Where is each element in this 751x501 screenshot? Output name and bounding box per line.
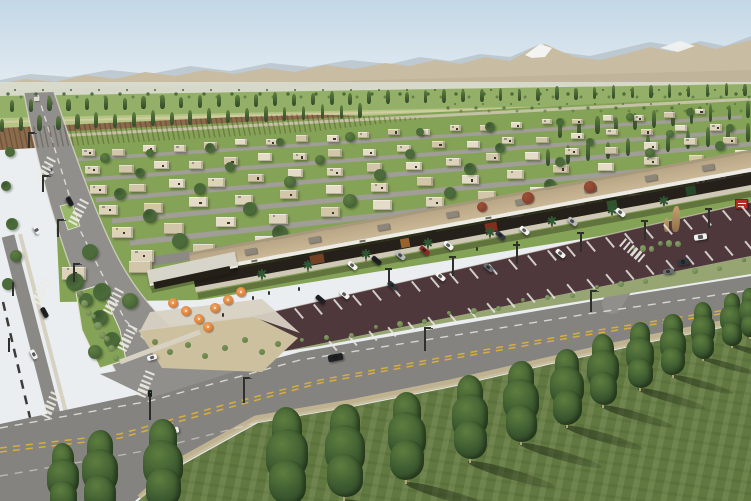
- rooftop-unit: [702, 164, 715, 172]
- house-window: [272, 142, 274, 144]
- house: [208, 178, 224, 187]
- poplar-foliage: [506, 405, 537, 442]
- light-crossbar: [641, 220, 648, 222]
- rooftop-ac-unit: [84, 150, 87, 152]
- parking-stripe: [368, 331, 377, 341]
- house: [695, 109, 705, 114]
- shrub: [521, 298, 525, 302]
- parked-car: [434, 272, 446, 283]
- street-tree: [686, 108, 694, 116]
- rooftop-ac-unit: [93, 186, 96, 188]
- field-tree: [518, 89, 522, 101]
- field-tree: [235, 95, 239, 107]
- rooftop-ac-unit: [88, 167, 91, 169]
- street-tree: [225, 162, 235, 172]
- poplar-tree: [47, 443, 78, 501]
- rooftop-ac-unit: [429, 198, 432, 200]
- house-window: [573, 151, 575, 153]
- house: [675, 125, 687, 131]
- car-cabin: [569, 219, 574, 224]
- poplar-tree: [325, 404, 366, 501]
- parking-light: [644, 220, 646, 240]
- house: [112, 149, 125, 156]
- house: [446, 158, 461, 166]
- street-tree: [122, 293, 138, 309]
- car-cabin: [397, 253, 402, 258]
- poplar-tree: [626, 322, 655, 391]
- field-tree: [649, 85, 652, 98]
- shrub: [471, 308, 477, 314]
- rooftop-ac-unit: [116, 228, 119, 230]
- house: [511, 122, 522, 128]
- house: [536, 137, 549, 144]
- field-tree: [207, 108, 211, 124]
- parking-stripe: [605, 237, 615, 248]
- street-tree: [343, 194, 357, 208]
- house: [572, 119, 583, 125]
- street-tree: [6, 218, 18, 230]
- car-cabin: [697, 234, 702, 239]
- house-window: [257, 177, 259, 179]
- rooftop-ac-unit: [375, 184, 378, 186]
- field-tree: [536, 88, 540, 101]
- ornamental-red-tree: [584, 181, 596, 193]
- poplar-tree: [691, 302, 716, 361]
- rooftop-ac-unit: [452, 126, 455, 128]
- parking-stripe: [333, 299, 343, 310]
- house: [321, 207, 340, 217]
- field-tree: [652, 110, 656, 128]
- house: [326, 185, 344, 194]
- car-cabin: [341, 292, 346, 297]
- street-tree: [172, 233, 188, 249]
- rooftop-ac-unit: [102, 206, 105, 208]
- parking-light: [580, 232, 582, 252]
- parking-stripe: [566, 246, 576, 257]
- rooftop-unit: [377, 223, 390, 231]
- field-tree: [264, 106, 268, 122]
- shrub: [374, 325, 378, 329]
- field-tree: [709, 104, 712, 122]
- house: [327, 168, 343, 176]
- light-crossbar: [577, 232, 584, 234]
- street-light: [73, 263, 75, 282]
- street-tree: [626, 113, 634, 121]
- shrub: [545, 295, 551, 301]
- shrub: [658, 241, 663, 246]
- car: [693, 233, 707, 241]
- rooftop-ac-unit: [712, 125, 715, 127]
- shrub: [349, 333, 354, 338]
- house: [606, 129, 618, 136]
- house: [502, 137, 515, 144]
- rooftop-ac-unit: [360, 133, 363, 135]
- house-window: [731, 140, 733, 142]
- street-tree: [405, 149, 415, 159]
- parked-car: [482, 263, 494, 274]
- field-tree: [151, 110, 155, 126]
- street-tree: [555, 157, 565, 167]
- rooftop-unit: [644, 174, 657, 182]
- light-crossbar: [705, 208, 712, 210]
- house-window: [639, 118, 641, 120]
- umbrella-pole-tip: [207, 326, 209, 328]
- house: [641, 129, 653, 135]
- street-light: [12, 282, 14, 296]
- parking-stripe: [427, 317, 436, 327]
- house: [571, 133, 583, 140]
- poplar-foliage: [590, 372, 617, 405]
- house: [174, 145, 187, 152]
- field-tree: [292, 94, 296, 106]
- palm-tree: [302, 261, 314, 273]
- car-cabin: [332, 354, 338, 360]
- house: [525, 152, 539, 160]
- patio-umbrella: [210, 303, 220, 313]
- house: [189, 161, 203, 169]
- field-tree: [687, 86, 690, 98]
- house-window: [199, 202, 201, 204]
- car-cabin: [373, 258, 378, 263]
- umbrella-pole-tip: [240, 291, 242, 293]
- field-tree: [424, 90, 428, 103]
- shrub: [108, 345, 115, 352]
- street-tree: [88, 345, 102, 359]
- street-tree: [194, 183, 206, 195]
- rooftop-ac-unit: [647, 158, 650, 160]
- rooftop-ac-unit: [67, 268, 70, 270]
- poplar-tree: [82, 430, 118, 501]
- parking-stripe: [449, 273, 459, 284]
- street-tree: [146, 149, 154, 157]
- field-tree: [198, 95, 202, 108]
- house: [363, 149, 377, 156]
- house-window: [336, 172, 338, 174]
- house: [373, 200, 392, 210]
- street-light: [590, 290, 592, 312]
- field-tree: [555, 86, 559, 100]
- storefront: [400, 238, 410, 248]
- field-tree: [170, 112, 174, 126]
- aerial-community-rendering: [0, 0, 751, 501]
- person: [222, 313, 224, 317]
- field-tree: [367, 91, 371, 104]
- street-light: [57, 219, 59, 237]
- house-window: [301, 156, 303, 158]
- parking-stripe: [348, 336, 357, 346]
- parking-stripe: [487, 303, 496, 313]
- rooftop-ac-unit: [238, 196, 241, 198]
- patio-umbrella: [168, 298, 178, 308]
- street-tree: [100, 153, 110, 163]
- street-tree: [82, 244, 98, 260]
- house-window: [381, 187, 383, 189]
- field-tree: [405, 92, 409, 104]
- poplar-foliage: [692, 333, 714, 359]
- shrub: [422, 319, 427, 324]
- house: [598, 163, 614, 171]
- field-tree: [10, 100, 15, 112]
- field-tree: [132, 112, 136, 127]
- house: [603, 115, 614, 121]
- house-window: [227, 222, 229, 224]
- poplar-foliage: [628, 358, 653, 388]
- palm-tree: [360, 250, 372, 262]
- person: [476, 247, 478, 251]
- street-light: [243, 377, 245, 403]
- street-tree: [715, 141, 725, 151]
- field-tree: [85, 98, 89, 111]
- shrub: [275, 341, 281, 347]
- rooftop-ac-unit: [212, 179, 215, 181]
- street-tree: [315, 155, 325, 165]
- house: [388, 129, 400, 135]
- parking-stripe: [372, 290, 382, 301]
- field-tree: [340, 105, 343, 119]
- shrub: [595, 285, 599, 289]
- field-tree: [0, 119, 4, 133]
- car: [32, 225, 40, 235]
- rooftop-ac-unit: [273, 215, 276, 217]
- field-tree: [706, 84, 709, 97]
- house: [406, 162, 421, 170]
- lamp-head: [48, 176, 51, 178]
- parking-stripe: [313, 304, 323, 315]
- house-window: [652, 146, 654, 148]
- poplar-tree: [503, 361, 538, 445]
- field-tree: [245, 108, 249, 123]
- street-tree: [276, 138, 284, 146]
- house: [296, 135, 308, 141]
- house-window: [578, 136, 580, 138]
- street-tree: [243, 202, 257, 216]
- house-window: [178, 183, 180, 185]
- shrub: [202, 353, 208, 359]
- shrub: [104, 336, 109, 341]
- parking-stripe: [683, 219, 693, 230]
- parking-stripe: [411, 281, 421, 292]
- car-cabin: [485, 265, 490, 270]
- poplar-tree: [452, 375, 489, 463]
- shrub: [717, 266, 722, 271]
- parking-stripe: [625, 269, 634, 279]
- rooftop-ac-unit: [296, 154, 299, 156]
- house: [216, 217, 236, 228]
- shrub: [77, 291, 82, 296]
- shrub: [324, 335, 330, 341]
- car-cabin: [680, 260, 685, 265]
- field-tree: [546, 149, 551, 166]
- field-tree: [348, 93, 352, 105]
- car-cabin: [557, 251, 562, 256]
- shrub: [649, 246, 655, 252]
- field-tree: [179, 97, 183, 109]
- house: [131, 250, 154, 262]
- shrub: [113, 355, 119, 361]
- lamp-head: [34, 133, 37, 135]
- light-crossbar: [449, 256, 456, 258]
- rooftop-ac-unit: [686, 139, 689, 141]
- field-tree: [217, 94, 221, 108]
- house-window: [89, 152, 91, 154]
- field-tree: [321, 104, 324, 120]
- house: [189, 197, 207, 207]
- house: [327, 135, 339, 141]
- street-tree: [345, 132, 355, 142]
- person: [298, 287, 300, 291]
- car: [327, 352, 343, 362]
- light-crossbar: [513, 244, 520, 246]
- rooftop-ac-unit: [176, 146, 179, 148]
- street-tree: [143, 209, 157, 223]
- rooftop-unit: [244, 247, 257, 255]
- parked-car: [314, 295, 326, 306]
- field-tree: [160, 95, 164, 109]
- house-window: [517, 125, 519, 127]
- house-window: [162, 165, 164, 167]
- car: [39, 307, 49, 319]
- field-tree: [743, 84, 746, 96]
- farm-building: [34, 97, 39, 101]
- parked-car: [554, 249, 566, 260]
- rooftop-ac-unit: [449, 159, 452, 161]
- parking-stripe: [606, 274, 615, 284]
- field-tree: [47, 97, 52, 111]
- house: [82, 149, 95, 156]
- house-window: [333, 138, 335, 140]
- rooftop-ac-unit: [192, 162, 195, 164]
- parking-light: [452, 256, 454, 276]
- house: [358, 132, 370, 138]
- house-window: [562, 168, 564, 170]
- street-tree: [1, 181, 11, 191]
- poplar-foliage: [661, 347, 685, 375]
- house: [119, 165, 134, 173]
- shrub: [242, 337, 248, 343]
- lamp-head: [79, 264, 82, 266]
- poplar-foliage: [454, 421, 487, 460]
- shrub: [666, 240, 673, 247]
- patio-umbrella: [236, 287, 246, 297]
- house: [684, 138, 697, 145]
- field-tree: [123, 98, 127, 110]
- rooftop-ac-unit: [400, 146, 403, 148]
- car: [30, 348, 39, 359]
- umbrella-pole-tip: [185, 310, 187, 312]
- house-window: [652, 161, 654, 163]
- light-crossbar: [385, 268, 392, 270]
- palm-tree: [546, 217, 558, 229]
- parking-stripe: [352, 295, 362, 306]
- person: [268, 291, 270, 295]
- shrub: [152, 339, 158, 345]
- field-tree: [746, 123, 749, 142]
- car-cabin: [445, 243, 450, 248]
- rooftop-unit: [446, 210, 459, 218]
- car-cabin: [437, 274, 442, 279]
- poplar-foliage: [327, 454, 363, 497]
- field-tree: [386, 90, 390, 104]
- house: [605, 147, 619, 154]
- car: [66, 195, 75, 206]
- palm-tree: [658, 197, 670, 209]
- street-tree: [495, 143, 505, 153]
- parking-stripe: [722, 210, 732, 221]
- desert-sculpture: [671, 206, 680, 232]
- street-tree: [464, 163, 476, 175]
- parking-stripe: [586, 241, 596, 252]
- lamp-head: [63, 220, 66, 222]
- field-tree: [113, 114, 117, 128]
- car-cabin: [421, 248, 426, 253]
- field-tree: [226, 110, 230, 124]
- street-tree: [374, 169, 386, 181]
- traffic-signal: [149, 396, 151, 420]
- street-light: [8, 338, 10, 352]
- street-light: [28, 132, 30, 148]
- poplar-foliage: [390, 440, 424, 480]
- rooftop-ac-unit: [636, 116, 639, 118]
- house: [248, 174, 264, 183]
- rooftop-ac-unit: [544, 120, 547, 122]
- street-tree: [5, 147, 15, 157]
- house: [507, 170, 523, 179]
- field-tree: [188, 110, 192, 125]
- shrub: [692, 268, 698, 274]
- street-light: [424, 327, 426, 351]
- house: [710, 124, 722, 130]
- house: [129, 184, 146, 193]
- field-tree: [358, 103, 361, 118]
- parking-stripe: [328, 341, 337, 351]
- house: [90, 185, 107, 194]
- parking-light: [516, 244, 518, 264]
- shrub: [643, 279, 648, 284]
- poplar-tree: [388, 392, 427, 484]
- shrub: [570, 293, 575, 298]
- house-window: [415, 166, 417, 168]
- field-tree: [37, 115, 41, 131]
- poplar-tree: [587, 334, 618, 408]
- house-window: [509, 140, 511, 142]
- house: [664, 112, 674, 118]
- car: [147, 353, 158, 360]
- street-tree: [66, 273, 84, 291]
- car-cabin: [32, 351, 37, 356]
- parking-stripe: [469, 268, 479, 279]
- field-tree: [626, 138, 630, 157]
- house: [85, 166, 100, 174]
- field-tree: [746, 101, 749, 118]
- parking-stripe: [526, 293, 535, 303]
- field-tree: [29, 99, 34, 112]
- field-tree: [283, 107, 286, 121]
- rooftop-ac-unit: [135, 251, 138, 253]
- shrub: [222, 345, 228, 351]
- ornamental-red-tree: [477, 202, 487, 212]
- parking-stripe: [388, 327, 397, 337]
- umbrella-pole-tip: [227, 299, 229, 301]
- rooftop-ac-unit: [268, 140, 271, 142]
- umbrella-pole-tip: [172, 302, 174, 304]
- field-tree: [56, 116, 60, 130]
- field-tree: [302, 106, 305, 121]
- parking-stripe: [702, 215, 712, 226]
- palm-tree: [256, 270, 268, 282]
- street-tree: [10, 250, 22, 262]
- house: [565, 148, 579, 156]
- house-window: [494, 157, 496, 159]
